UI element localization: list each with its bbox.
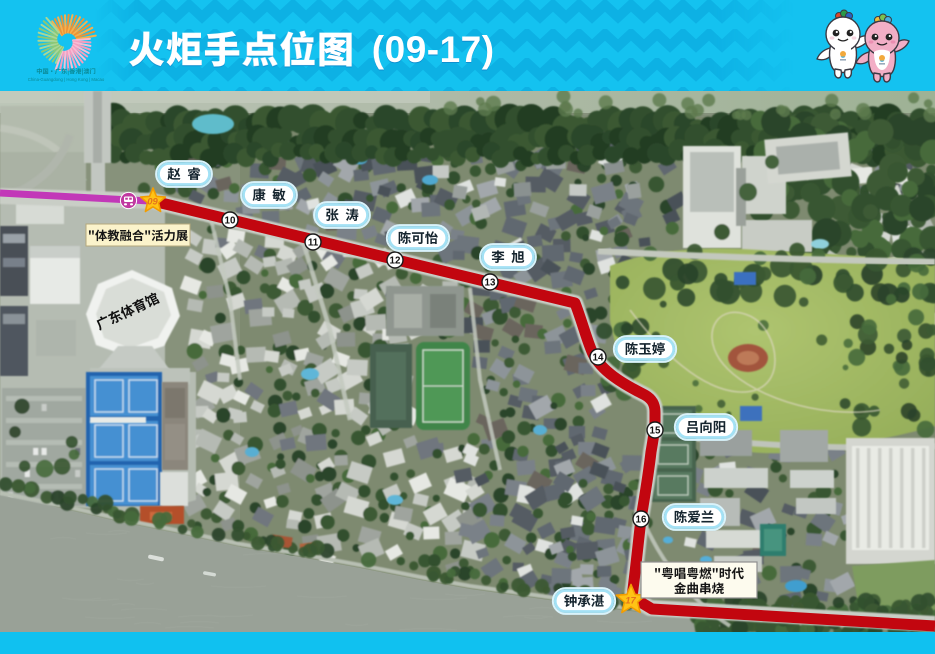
svg-text:17: 17 [625,596,636,607]
svg-text:12: 12 [390,256,401,267]
svg-text:11: 11 [308,238,319,249]
svg-text:15: 15 [650,426,661,437]
svg-text:(09-17): (09-17) [372,29,495,70]
svg-text:16: 16 [636,515,647,526]
svg-text:China-Guangdong | Hong Kong |: China-Guangdong | Hong Kong | Macao [28,77,105,82]
svg-text:09: 09 [147,197,158,208]
svg-text:10: 10 [225,216,236,227]
svg-text:13: 13 [485,278,496,289]
svg-text:14: 14 [593,353,604,364]
